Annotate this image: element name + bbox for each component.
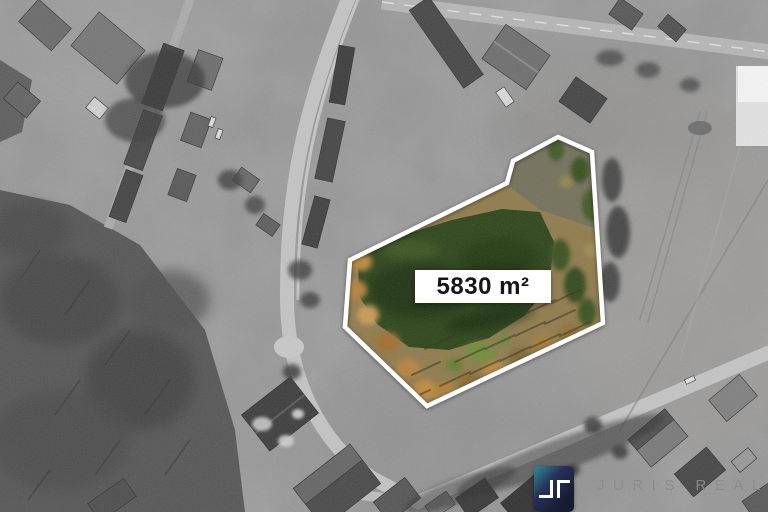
area-label-text: 5830 m² <box>437 273 530 301</box>
area-label: 5830 m² <box>415 270 551 303</box>
aerial-photo <box>0 0 768 512</box>
aerial-screenshot: 5830 m² JURIS REAL <box>0 0 768 512</box>
photo-grain <box>0 0 768 512</box>
